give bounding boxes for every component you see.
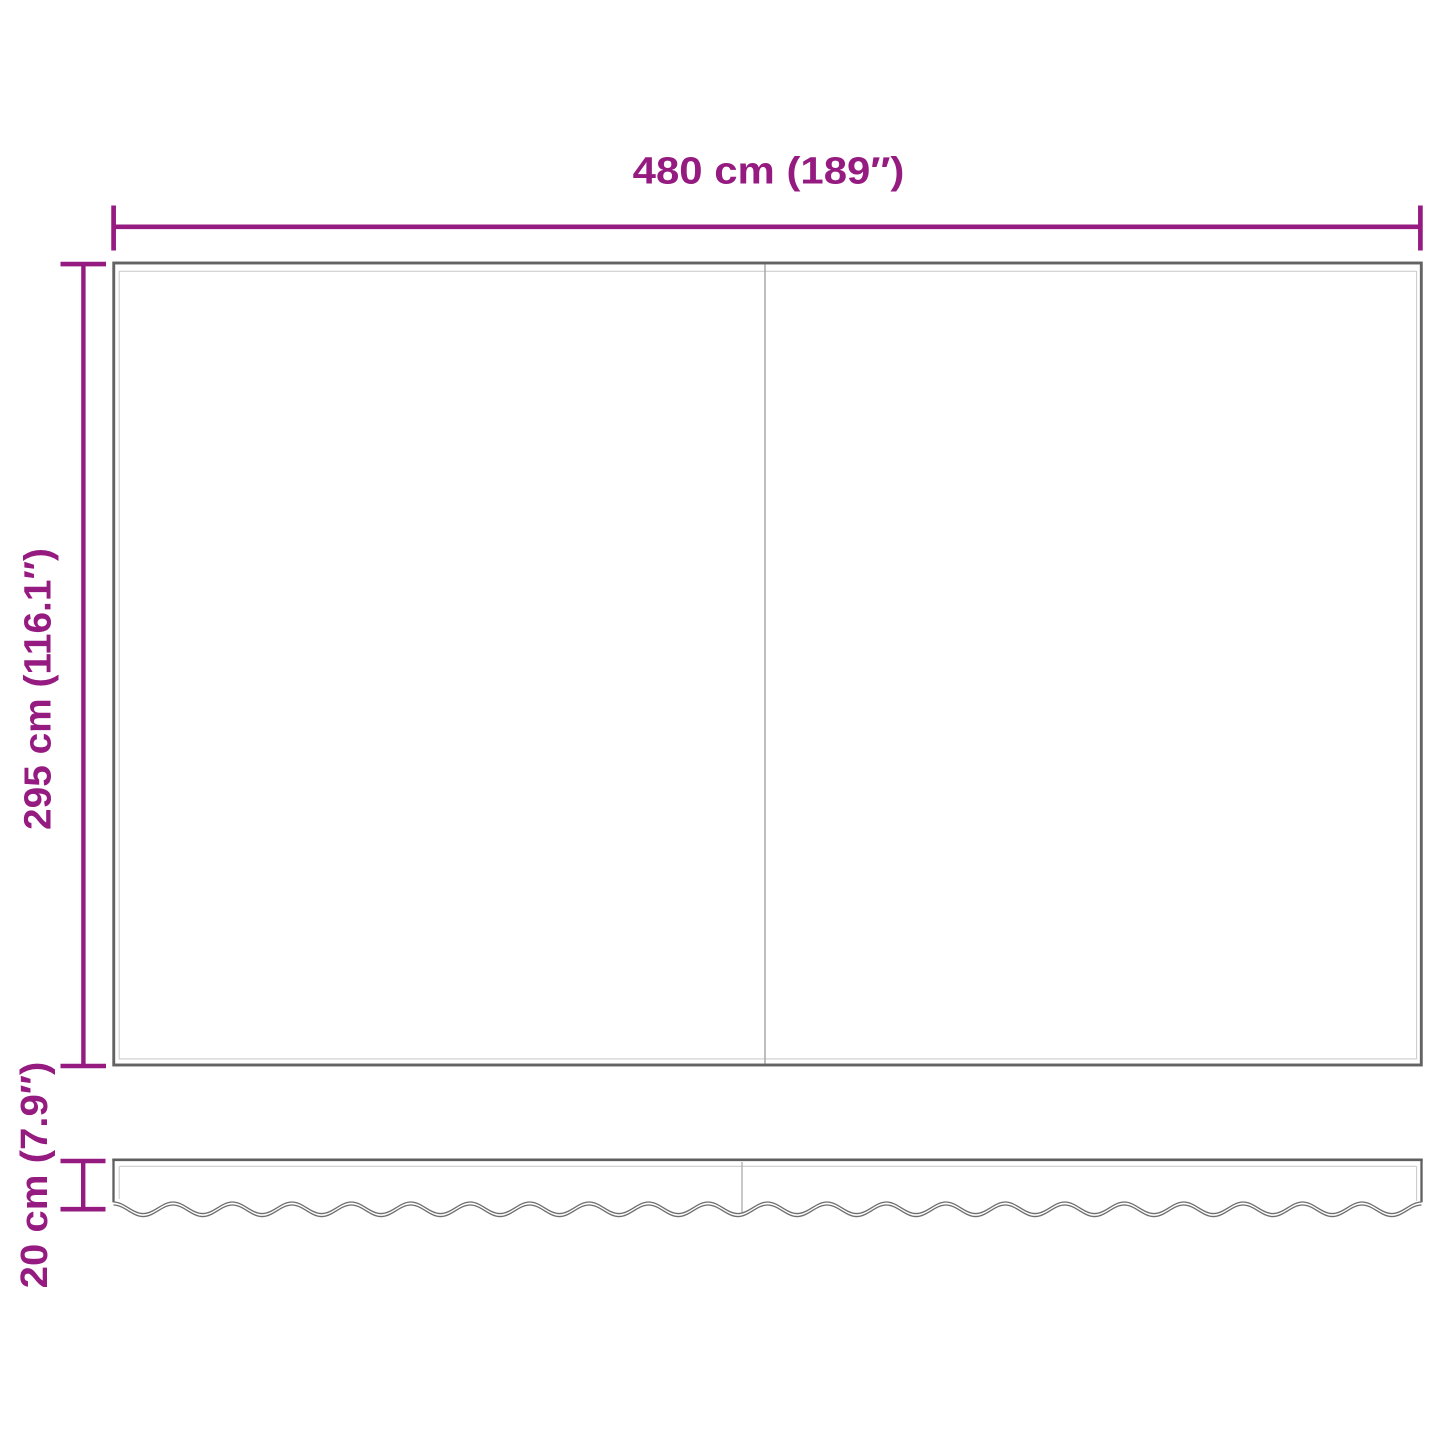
svg-text:480 cm (189″): 480 cm (189″) xyxy=(633,150,905,192)
svg-text:20 cm (7.9″): 20 cm (7.9″) xyxy=(14,1062,56,1289)
svg-text:295 cm (116.1″): 295 cm (116.1″) xyxy=(17,548,60,830)
